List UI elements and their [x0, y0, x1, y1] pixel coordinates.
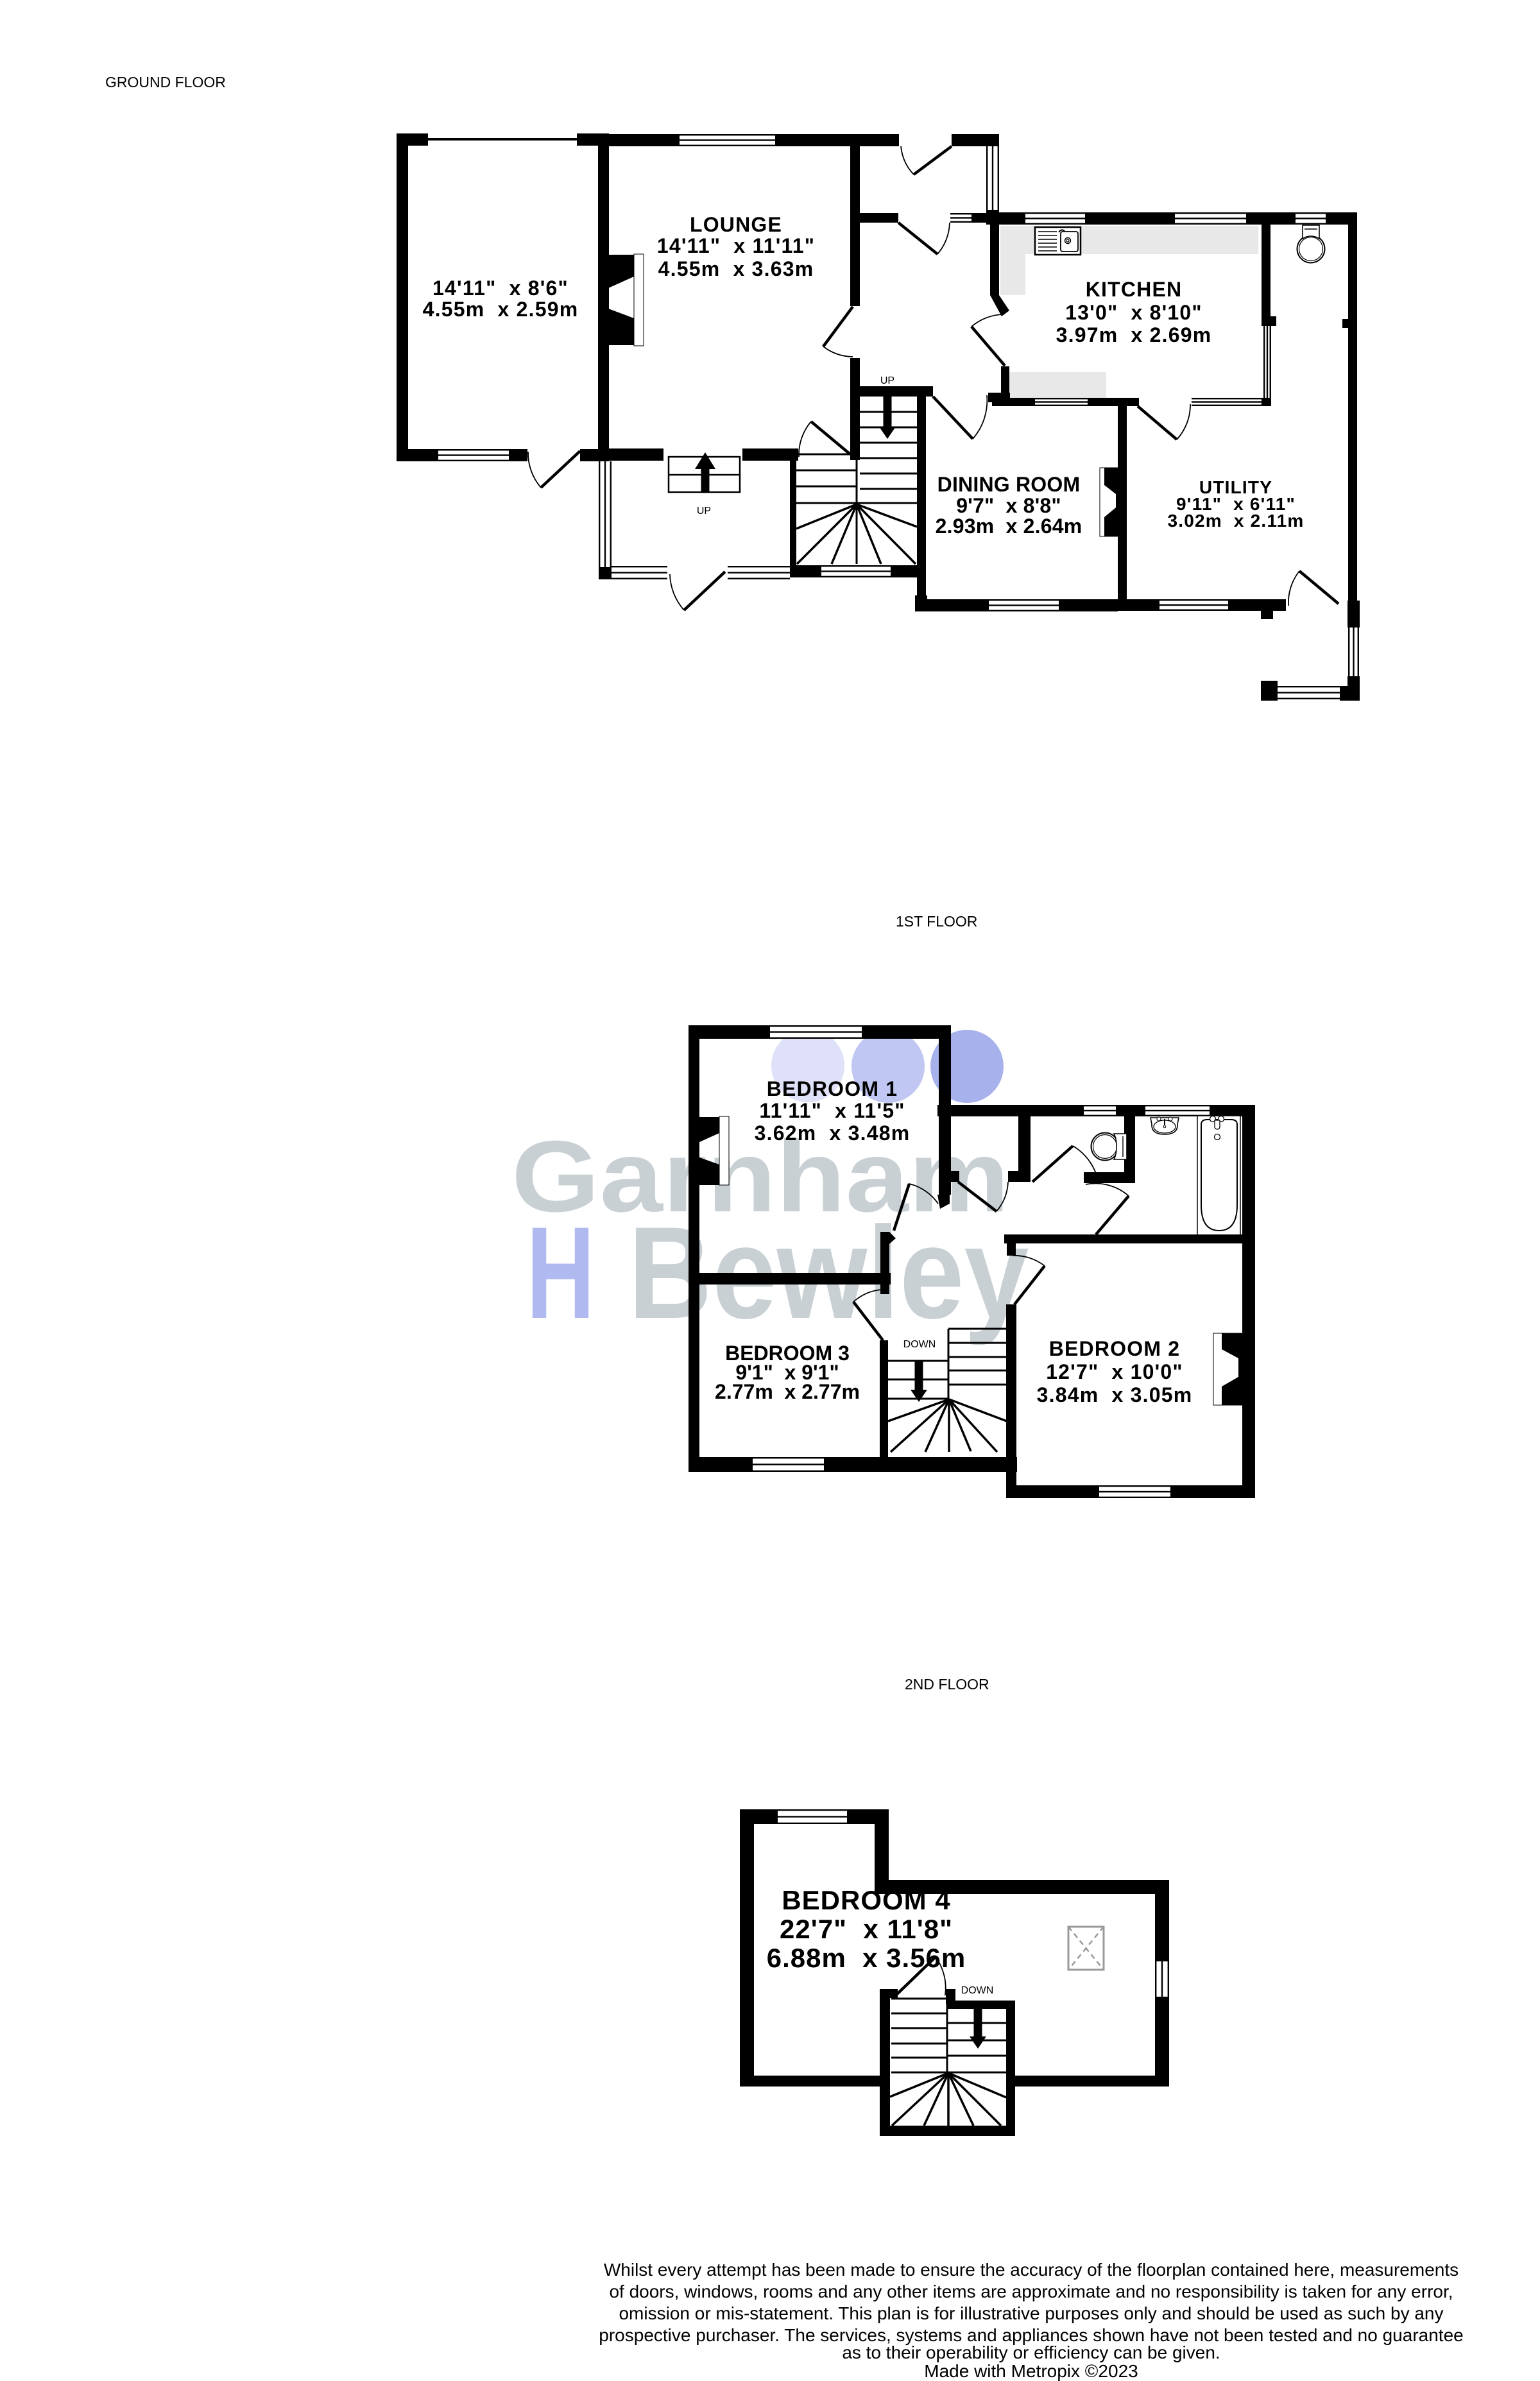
- svg-text:UP: UP: [697, 506, 711, 516]
- svg-text:2.93m x 2.64m: 2.93m x 2.64m: [936, 515, 1082, 538]
- svg-text:BEDROOM 4: BEDROOM 4: [782, 1885, 950, 1915]
- svg-text:GROUND FLOOR: GROUND FLOOR: [105, 74, 226, 90]
- svg-text:9'7" x 8'8": 9'7" x 8'8": [956, 494, 1061, 517]
- svg-text:omission or mis-statement. Thi: omission or mis-statement. This plan is …: [619, 2303, 1443, 2323]
- svg-text:1ST FLOOR: 1ST FLOOR: [896, 913, 977, 930]
- svg-text:Bewley: Bewley: [628, 1199, 1029, 1345]
- svg-text:3.97m x 2.69m: 3.97m x 2.69m: [1056, 323, 1212, 346]
- svg-text:12'7" x 10'0": 12'7" x 10'0": [1046, 1360, 1183, 1383]
- svg-text:4.55m x 2.59m: 4.55m x 2.59m: [423, 298, 579, 321]
- svg-text:as to their operability or eff: as to their operability or efficiency ca…: [842, 2343, 1220, 2362]
- svg-text:14'11" x 11'11": 14'11" x 11'11": [657, 234, 815, 257]
- svg-text:2.77m x 2.77m: 2.77m x 2.77m: [715, 1380, 860, 1403]
- svg-text:Whilst every attempt has been: Whilst every attempt has been made to en…: [604, 2260, 1459, 2280]
- svg-text:4.55m x 3.63m: 4.55m x 3.63m: [658, 257, 814, 280]
- svg-text:3.62m x 3.48m: 3.62m x 3.48m: [755, 1122, 911, 1145]
- svg-text:3.84m x 3.05m: 3.84m x 3.05m: [1037, 1383, 1193, 1406]
- svg-text:2ND FLOOR: 2ND FLOOR: [905, 1676, 989, 1693]
- svg-text:H: H: [526, 1200, 595, 1346]
- svg-text:DOWN: DOWN: [961, 1985, 994, 1996]
- svg-text:LOUNGE: LOUNGE: [690, 213, 782, 236]
- svg-text:DINING ROOM: DINING ROOM: [937, 473, 1081, 496]
- svg-text:BEDROOM 1: BEDROOM 1: [767, 1077, 898, 1100]
- svg-text:22'7" x 11'8": 22'7" x 11'8": [780, 1914, 953, 1944]
- svg-text:13'0" x 8'10": 13'0" x 8'10": [1065, 301, 1202, 324]
- svg-text:UP: UP: [880, 375, 894, 386]
- svg-text:Made with Metropix ©2023: Made with Metropix ©2023: [924, 2361, 1138, 2381]
- svg-text:3.02m x 2.11m: 3.02m x 2.11m: [1168, 511, 1305, 531]
- svg-text:11'11" x 11'5": 11'11" x 11'5": [759, 1099, 905, 1122]
- svg-text:14'11" x 8'6": 14'11" x 8'6": [432, 277, 569, 300]
- svg-text:KITCHEN: KITCHEN: [1086, 278, 1183, 301]
- svg-text:DOWN: DOWN: [903, 1339, 936, 1350]
- svg-text:of doors, windows, rooms and a: of doors, windows, rooms and any other i…: [609, 2282, 1453, 2301]
- svg-text:BEDROOM 2: BEDROOM 2: [1049, 1337, 1181, 1360]
